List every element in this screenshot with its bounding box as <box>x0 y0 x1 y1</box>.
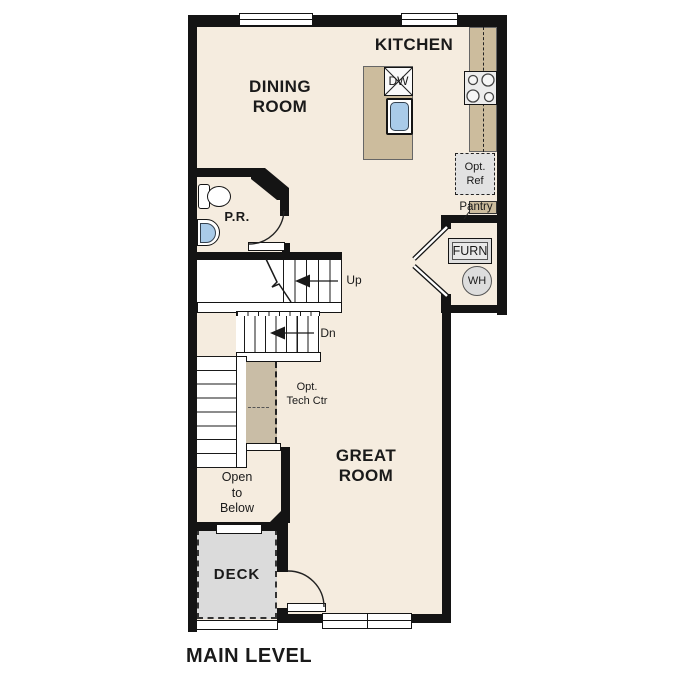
wall-open-below-right <box>281 447 290 523</box>
wall-top <box>188 15 507 27</box>
deck-label: DECK <box>214 566 261 583</box>
room-label-powder: P.R. <box>219 209 255 224</box>
open-to-below-label: Open to Below <box>207 470 267 517</box>
floorplan-canvas: DECK <box>0 0 687 687</box>
tech-center-label: Opt. Tech Ctr <box>281 381 333 408</box>
room-label-dining: DINING ROOM <box>230 77 330 116</box>
water-heater-label: WH <box>462 275 492 287</box>
room-label-kitchen: KITCHEN <box>364 35 464 55</box>
stairs-lower-flight <box>197 356 238 468</box>
plan-title: MAIN LEVEL <box>186 645 386 668</box>
stairs-down-label: Dn <box>315 326 341 340</box>
stairs-up-label: Up <box>341 273 367 287</box>
wall-right-lower <box>442 305 451 623</box>
deck-area: DECK <box>197 529 277 619</box>
furnace-label: FURN <box>448 244 492 258</box>
wall-powder-right <box>280 192 289 216</box>
range-stove <box>464 71 497 105</box>
wall-stairs-top <box>188 252 342 260</box>
stair-treads-down <box>244 316 319 354</box>
window-bottom <box>322 613 412 629</box>
stairs-down-run <box>236 316 320 354</box>
pantry-label: Pantry <box>452 201 500 215</box>
wall-closet-door-stub-top <box>441 215 451 229</box>
optional-tech-center <box>246 362 277 443</box>
toilet-bowl <box>207 186 231 207</box>
stair-treads-up <box>283 260 342 303</box>
deck-threshold <box>216 524 262 534</box>
wall-right-upper <box>497 15 507 315</box>
deck-door-leaf <box>287 603 326 612</box>
powder-door-leaf <box>248 242 285 251</box>
window-top-left <box>239 13 313 26</box>
deck-lower-edge <box>193 620 278 630</box>
room-label-great: GREAT ROOM <box>316 446 416 485</box>
dishwasher-label: DW <box>384 75 413 89</box>
island-sink-basin <box>390 102 409 131</box>
window-top-right <box>401 13 458 26</box>
stair-down-bottom-band <box>236 352 321 362</box>
opt-ref-label: Opt. Ref <box>455 161 495 188</box>
tech-center-base <box>246 443 281 451</box>
stairs-up-run <box>197 260 342 303</box>
wall-left <box>188 15 197 632</box>
wall-powder-top <box>188 168 255 177</box>
